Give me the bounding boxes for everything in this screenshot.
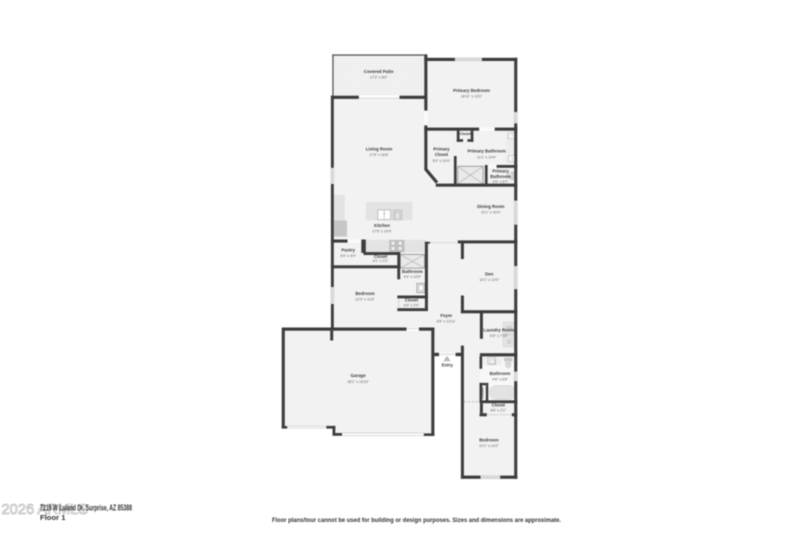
svg-text:Laundry Room: Laundry Room [483, 328, 514, 333]
svg-text:4'9" x 10'5": 4'9" x 10'5" [404, 275, 422, 279]
svg-text:Closet: Closet [460, 132, 472, 136]
svg-text:10'1" x 10'4": 10'1" x 10'4" [481, 211, 501, 215]
svg-text:6'5" x 13'11": 6'5" x 13'11" [437, 319, 457, 323]
svg-text:Kitchen: Kitchen [374, 223, 390, 228]
svg-text:Living Room: Living Room [366, 147, 393, 152]
svg-text:Primary Bathroom: Primary Bathroom [467, 149, 505, 154]
svg-text:Garage: Garage [351, 373, 367, 378]
svg-text:Bedroom: Bedroom [479, 438, 498, 443]
svg-text:17'5" x 10'9": 17'5" x 10'9" [372, 230, 392, 234]
svg-text:Bedroom: Bedroom [355, 291, 374, 296]
svg-text:Floor 1: Floor 1 [40, 513, 66, 522]
svg-text:5'9" x 6'7": 5'9" x 6'7" [493, 180, 509, 184]
svg-text:4'6" x 8'8": 4'6" x 8'8" [492, 378, 508, 382]
svg-text:Closet: Closet [481, 386, 485, 398]
svg-text:Closet: Closet [435, 152, 449, 157]
svg-text:Bathroom: Bathroom [402, 269, 423, 274]
svg-text:Bathroom: Bathroom [490, 174, 511, 179]
svg-text:Closet: Closet [405, 297, 419, 302]
svg-text:10'1" x 14'2": 10'1" x 14'2" [479, 444, 499, 448]
svg-text:Primary: Primary [433, 146, 450, 151]
svg-text:4'9" x 2'0": 4'9" x 2'0" [404, 304, 420, 308]
svg-text:12'3" x 11'6": 12'3" x 11'6" [355, 297, 375, 301]
svg-text:Bathroom: Bathroom [490, 371, 511, 376]
svg-text:Floor plans/tour cannot be use: Floor plans/tour cannot be used for buil… [272, 517, 561, 524]
svg-text:7219 W Laland Dr, Surprise, AZ: 7219 W Laland Dr, Surprise, AZ 85388 [40, 502, 132, 512]
svg-text:Covered Patio: Covered Patio [364, 69, 394, 74]
svg-text:17'3" x 8'0": 17'3" x 8'0" [370, 76, 388, 80]
svg-text:11'1" x 10'4": 11'1" x 10'4" [477, 155, 497, 159]
svg-text:Primary: Primary [492, 168, 509, 173]
svg-text:6'9" x 7'10": 6'9" x 7'10" [490, 334, 508, 338]
svg-text:D: D [507, 339, 511, 345]
svg-text:5'4" x 4'4": 5'4" x 4'4" [340, 254, 356, 258]
svg-text:10'1" x 12'0": 10'1" x 12'0" [479, 278, 499, 282]
svg-text:Foyer: Foyer [440, 313, 452, 318]
svg-text:Primary Bedroom: Primary Bedroom [453, 88, 490, 93]
svg-text:Closet: Closet [374, 254, 388, 259]
svg-text:16'11" x 13'0": 16'11" x 13'0" [461, 94, 483, 98]
svg-text:17'5" x 18'8": 17'5" x 18'8" [369, 153, 389, 157]
svg-text:Pantry: Pantry [341, 248, 355, 253]
svg-text:Entry: Entry [442, 362, 454, 367]
svg-text:6'1" x 2'2": 6'1" x 2'2" [373, 259, 389, 263]
svg-text:6'6" x 2'1": 6'6" x 2'1" [490, 408, 506, 412]
svg-text:28'1" x 19'10": 28'1" x 19'10" [347, 380, 369, 384]
svg-text:Dining Room: Dining Room [477, 204, 504, 209]
svg-text:Den: Den [485, 272, 494, 277]
svg-text:Closet: Closet [492, 402, 506, 407]
svg-text:5'0" x 10'4": 5'0" x 10'4" [433, 159, 451, 163]
